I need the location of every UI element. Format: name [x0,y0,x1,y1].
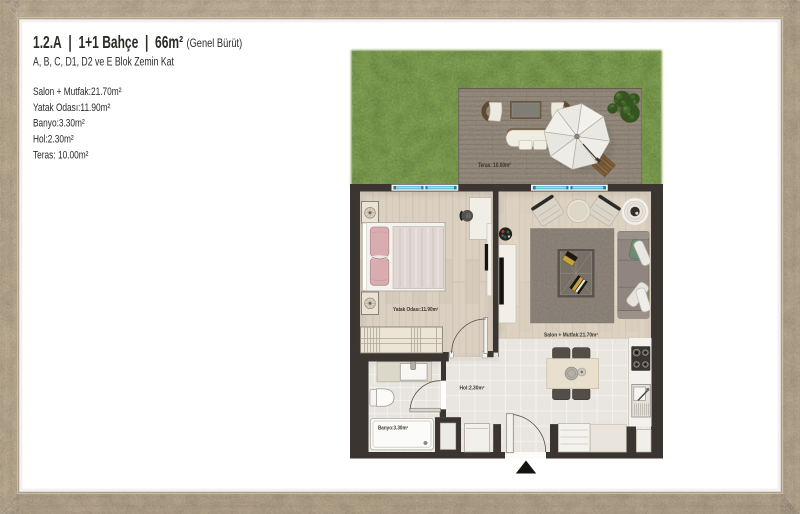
svg-text:1.2.A | 1+1 Bahçe | 66m²: 1.2.A | 1+1 Bahçe | 66m² [33,34,183,53]
svg-text:Banyo:3.30m²: Banyo:3.30m² [33,117,85,130]
svg-text:Teras: 10.00m²: Teras: 10.00m² [478,163,511,170]
svg-text:Yatak Odası:11.90m²: Yatak Odası:11.90m² [393,307,439,313]
svg-text:Salon + Mutfak:21.70m²: Salon + Mutfak:21.70m² [33,86,122,99]
svg-text:(Genel Bürüt): (Genel Bürüt) [187,37,243,50]
svg-text:Hol:2.30m²: Hol:2.30m² [460,385,485,391]
svg-text:Hol:2.30m²: Hol:2.30m² [33,133,74,146]
svg-text:Yatak Odası:11.90m²: Yatak Odası:11.90m² [33,102,111,115]
svg-text:Banyo:3.30m²: Banyo:3.30m² [378,425,408,431]
svg-text:A, B, C, D1, D2 ve E Blok Zemi: A, B, C, D1, D2 ve E Blok Zemin Kat [33,56,174,69]
svg-text:Salon + Mutfak:21.70m²: Salon + Mutfak:21.70m² [544,332,598,338]
svg-text:Teras: 10.00m²: Teras: 10.00m² [33,149,89,162]
